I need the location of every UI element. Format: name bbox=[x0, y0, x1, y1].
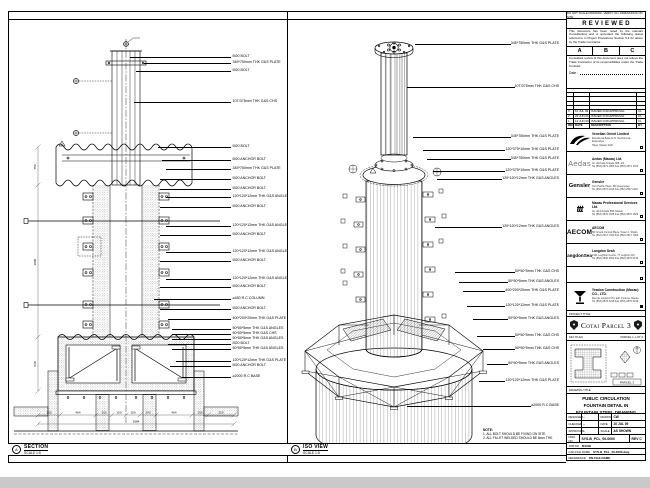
key-plan-caption: PARCEL 3 bbox=[620, 380, 635, 384]
callout: M20 ANCHOR BOLT bbox=[160, 187, 266, 191]
callout: M20 ANCHOR BOLT bbox=[170, 364, 266, 368]
callout: 50*50*5mm THK G&S CHS bbox=[477, 334, 559, 338]
company-contact: Tel (852) 2317 7000 Fax (852) 2317 7009 bbox=[592, 234, 639, 237]
callout: 50*50*5mm THK G&S ANGLES bbox=[172, 347, 283, 351]
callout: 120*120*12mm THK G&S PLATE bbox=[479, 379, 559, 383]
callout: 345*750mm THK G&S PLATE bbox=[427, 157, 559, 161]
detail-ref-letter: B bbox=[294, 447, 297, 452]
svg-text:540: 540 bbox=[33, 361, 37, 366]
contractor-name: Yeadon Construction (Macau) CO., LTD. bbox=[592, 289, 639, 297]
company-contact: Tel (852) 2507 0118 Fax (852) 2507 0119 bbox=[592, 188, 639, 191]
contractor-logo-icon bbox=[567, 289, 592, 305]
svg-text:2584: 2584 bbox=[133, 420, 140, 424]
callout: M20 ANCHOR BOLT bbox=[160, 177, 266, 181]
checkbox bbox=[640, 277, 644, 281]
callout: 120*120*12mm THK G&S ANGLES bbox=[166, 277, 287, 281]
svg-text:3000: 3000 bbox=[33, 258, 37, 265]
key-plan-parcel-label: PARCEL 1, LOT 2 bbox=[621, 335, 644, 339]
detail-ref-letter: A bbox=[15, 447, 18, 452]
svg-text:464: 464 bbox=[171, 411, 176, 415]
checkbox bbox=[640, 146, 644, 150]
contractor-contact: Tel (853) 2875 3218 Fax (853) 2875 3219 bbox=[592, 300, 639, 303]
drawn-label: DRAWN bbox=[599, 414, 612, 420]
view-scale: SCALE 1:5 bbox=[303, 450, 328, 456]
detail-reference-bubble: B bbox=[291, 445, 300, 454]
date-value: 10 JUL 09 bbox=[612, 421, 645, 427]
reviewed-stamp: REVIEWED This document has been noted by… bbox=[566, 19, 646, 89]
cad-file-label: CAD FILE NAME bbox=[569, 450, 590, 454]
gensler-logo: Gensler bbox=[567, 183, 592, 189]
info-row-approved-scale: APPROVED - SCALE AS SHOWN bbox=[566, 428, 646, 435]
callout: M20 ANCHOR BOLT bbox=[160, 205, 266, 209]
callout: 345*750mm THK G&S PLATE bbox=[413, 135, 559, 139]
company-contact: Tel (853) 2871 1800 Fax (853) 2871 1700 bbox=[592, 165, 639, 168]
dwg-no-value: SYS-B_PCL_00-0000 bbox=[580, 435, 630, 443]
callout: 50*50*5mm THK G&S CHS bbox=[483, 347, 559, 351]
callout: M20 BOLT bbox=[130, 55, 250, 59]
project-title: Cotai Parcel 3 bbox=[581, 321, 631, 330]
revision-table: 310 JUL 09ISSUED FOR APPROVALCL 226 JUN … bbox=[566, 89, 646, 129]
callout: 120*120*12mm THK G&S ANGLES bbox=[166, 195, 287, 199]
venetian-swoosh-icon bbox=[567, 134, 592, 146]
svg-text:150: 150 bbox=[130, 411, 135, 415]
svg-text:750: 750 bbox=[33, 164, 37, 169]
callout: ⌀2000 R.C BASE bbox=[182, 375, 260, 379]
contractor-box: Yeadon Construction (Macau) CO., LTD. Ru… bbox=[566, 283, 646, 311]
info-row-designed-drawn: DESIGNED - DRAWN CW bbox=[566, 414, 646, 421]
checkbox bbox=[640, 261, 644, 265]
checkbox bbox=[640, 215, 644, 219]
scale-value: AS SHOWN bbox=[612, 428, 645, 434]
key-plan-header: KEY PLAN PARCEL 1, LOT 2 bbox=[566, 334, 646, 341]
iso-view-panel: 345*750mm THK G&S PLATE 10T/375mm THK G&… bbox=[287, 11, 566, 463]
callout: M20 ANCHOR BOLT bbox=[160, 233, 266, 237]
callout: 120*120*12mm THK G&S ANGLES bbox=[437, 177, 559, 181]
checkbox-filled bbox=[640, 305, 644, 309]
checked-label: CHECKED bbox=[567, 421, 582, 427]
company-box-langdon-seah: LangdonSeah Langdon Seah 2101 Leighton C… bbox=[566, 244, 646, 267]
grade-b: B bbox=[593, 47, 619, 55]
drawing-title-line: FOUNTAIN DETAIL IN bbox=[567, 403, 645, 409]
callout: ⌀450 R.C COLUMN bbox=[154, 297, 264, 301]
date-fill-line bbox=[580, 71, 643, 75]
company-contact: Tel (853) 2870 1628 Fax (853) 2870 1629 bbox=[592, 213, 639, 216]
ttt-logo: ttt bbox=[567, 204, 592, 214]
drawing-title-box: DRAWING TITLE PUBLIC CIRCULATION FOUNTAI… bbox=[566, 387, 646, 414]
reviewed-paragraph-2: Consultant review of this document does … bbox=[567, 56, 645, 70]
callout: 50*50*5mm THK G&S ANGLES bbox=[487, 362, 559, 366]
company-box-aedas: Aedas Aedas (Macau) Ltd. Av. da Praia Gr… bbox=[566, 152, 646, 175]
company-box-gensler: Gensler Gensler Two Pacific Place, 88 Qu… bbox=[566, 175, 646, 198]
reference-row: REFERENCE ON FILE NAME bbox=[566, 455, 646, 461]
callout: 50*50*5mm THK G&S ANGLES bbox=[473, 317, 559, 321]
checkbox bbox=[640, 192, 644, 196]
job-no-label: JOB NO bbox=[569, 444, 579, 448]
date-label: Date : bbox=[569, 71, 578, 75]
callout: 120*120*12mm THK G&S ANGLES bbox=[166, 250, 287, 254]
aecom-logo: AECOM bbox=[567, 229, 592, 236]
note-line: 2. ALL FILLET WELDED SHOULD BE 6mm THK. bbox=[483, 436, 563, 440]
callout: M20 BOLT bbox=[136, 69, 250, 73]
job-no-value: M1049 bbox=[582, 444, 591, 448]
rev-value: REV C bbox=[630, 435, 645, 443]
revision-header-row: REVDATEDESCRIPTIONBY bbox=[567, 123, 645, 128]
company-box-venetian: Venetian Orient Limited Estrada da Baía … bbox=[566, 129, 646, 152]
key-plan-drawing: PARCEL 3 bbox=[567, 341, 645, 386]
callout: M20 ANCHOR BOLT bbox=[160, 285, 266, 289]
iso-linework bbox=[302, 42, 487, 443]
callout: M20 ANCHOR BOLT bbox=[160, 259, 266, 263]
callout: ⌀2000 R.C BASE bbox=[407, 404, 559, 408]
svg-text:150: 150 bbox=[116, 411, 121, 415]
section-view-panel: 750 3000 540 200 464 200 150 150 200 464… bbox=[8, 11, 287, 463]
checkbox bbox=[640, 238, 644, 242]
reviewed-title: REVIEWED bbox=[567, 19, 645, 29]
designed-label: DESIGNED bbox=[567, 414, 582, 420]
aedas-logo: Aedas bbox=[567, 159, 592, 168]
emblem-icon bbox=[634, 320, 642, 330]
callout: 345*750mm THK G&S PLATE bbox=[415, 42, 559, 46]
drawing-number-row: DWG NO SYS-B_PCL_00-0000 REV C bbox=[566, 435, 646, 443]
callout: 120*375*10mm THK G&S PLATE bbox=[433, 169, 559, 173]
view-scale: SCALE 1:5 bbox=[24, 450, 48, 456]
title-block: DO NOT SCALE DRAWING. VERIFY ALL DIMENSI… bbox=[566, 11, 646, 463]
callout: 345*750mm THK G&S PLATE bbox=[166, 167, 281, 171]
designed-value: - bbox=[582, 414, 599, 420]
empty-consultant-box bbox=[566, 267, 646, 283]
callout: 120*375*10mm THK G&S PLATE bbox=[423, 148, 559, 152]
approved-value: - bbox=[582, 428, 599, 434]
reviewed-date-row: Date : bbox=[567, 70, 645, 76]
company-box-aecom: AECOM AECOM 8/F Grand Central Plaza, Tow… bbox=[566, 221, 646, 244]
callout: 120*120*12mm THK G&S PLATE bbox=[467, 304, 559, 308]
emblem-icon bbox=[570, 320, 578, 330]
callout: 10T/375mm THK G&S CHS bbox=[134, 100, 277, 104]
callout: M20 ANCHOR BOLT bbox=[162, 158, 266, 162]
svg-text:200: 200 bbox=[46, 411, 51, 415]
review-grades: A B C bbox=[567, 46, 645, 56]
callout: 400*200*20mm THK G&S PLATE bbox=[463, 289, 559, 293]
checkbox bbox=[640, 169, 644, 173]
langdon-seah-logo: LangdonSeah bbox=[567, 253, 592, 258]
drawing-sheet: 750 3000 540 200 464 200 150 150 200 464… bbox=[0, 0, 650, 477]
callout: M20 BOLT bbox=[158, 145, 250, 149]
callout: 120*120*12mm THK G&S ANGLES bbox=[435, 225, 559, 229]
callout: 50*50*5mm THK G&S ANGLES bbox=[172, 337, 283, 341]
iso-view-title-strip: B ISO VIEW SCALE 1:5 bbox=[287, 443, 566, 456]
info-row-checked-date: CHECKED - DATE 10 JUL 09 bbox=[566, 421, 646, 428]
svg-text:200: 200 bbox=[101, 411, 106, 415]
svg-text:250: 250 bbox=[218, 411, 223, 415]
company-contact: Taipa, Macau SAR bbox=[592, 144, 639, 147]
key-plan-label: KEY PLAN bbox=[569, 335, 583, 339]
callout: 50*50*5mm THK G&S ANGLES bbox=[459, 280, 559, 284]
dwg-no-label: DWG NO bbox=[567, 435, 580, 443]
reference-value: ON FILE NAME bbox=[589, 456, 611, 460]
reference-label: REFERENCE bbox=[569, 456, 586, 460]
detail-reference-bubble: A bbox=[12, 445, 21, 454]
drawing-title-line: PUBLIC CIRCULATION bbox=[567, 396, 645, 402]
scale-label: SCALE bbox=[599, 428, 612, 434]
callout: 50*50*5mm THK G&S CHS bbox=[455, 270, 559, 274]
svg-text:464: 464 bbox=[75, 411, 80, 415]
grade-a: A bbox=[567, 47, 593, 55]
reviewed-paragraph-1: This document has been noted by the rele… bbox=[567, 29, 645, 47]
key-plan: PARCEL 3 bbox=[566, 341, 646, 387]
drawing-title-label: DRAWING TITLE bbox=[567, 387, 645, 394]
project-title-banner: Cotai Parcel 3 bbox=[566, 317, 646, 334]
company-box-mps: ttt Macau Professional Services Ltd. Av.… bbox=[566, 198, 646, 221]
company-name: Macau Professional Services Ltd. bbox=[592, 202, 639, 210]
company-contact: Tel (852) 2830 3500 Fax (852) 2576 0416 bbox=[592, 257, 639, 260]
callout: 120*120*12mm THK G&S ANGLES bbox=[166, 224, 287, 228]
drawn-value: CW bbox=[612, 414, 645, 420]
approved-label: APPROVED bbox=[567, 428, 582, 434]
checked-value: - bbox=[582, 421, 599, 427]
svg-text:200: 200 bbox=[197, 411, 202, 415]
date-label: DATE bbox=[599, 421, 612, 427]
general-notes: NOTE: 1. ALL BOLT SHOULD BE FIXING ON SI… bbox=[483, 428, 563, 440]
callout: M20 ANCHOR BOLT bbox=[160, 307, 266, 311]
callout: 10T/375mm THK G&S CHS bbox=[407, 85, 559, 89]
callout: 345*750mm THK G&S PLATE bbox=[144, 61, 281, 65]
do-not-scale-note: DO NOT SCALE DRAWING. VERIFY ALL DIMENSI… bbox=[566, 11, 646, 19]
callout: 400*200*20mm THK G&S PLATE bbox=[168, 317, 286, 321]
svg-text:200: 200 bbox=[145, 411, 150, 415]
section-view-drawing: 750 3000 540 200 464 200 150 150 200 464… bbox=[8, 19, 287, 443]
section-view-title-strip: A SECTION SCALE 1:5 bbox=[8, 443, 287, 456]
cad-file-value: SYS-B_PCL_00-0000.dwg bbox=[593, 450, 629, 454]
cad-sheet-viewer: { "sheet": { "top_note": "DO NOT SCALE D… bbox=[0, 0, 650, 488]
grade-c: C bbox=[620, 47, 645, 55]
callout: 120*120*12mm THK G&S PLATE bbox=[176, 359, 286, 363]
